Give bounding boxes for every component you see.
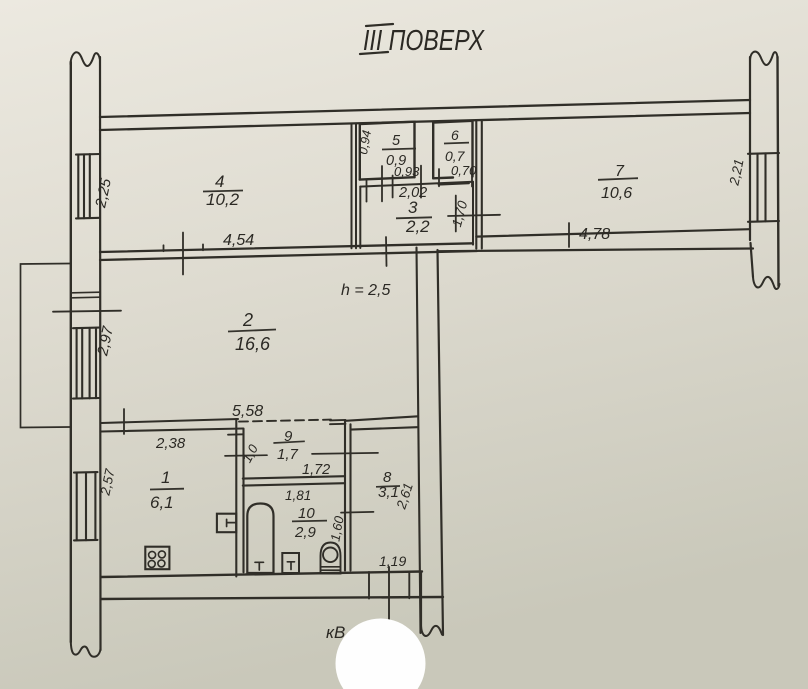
svg-text:1: 1: [161, 468, 170, 487]
svg-text:2: 2: [242, 310, 253, 330]
svg-text:1,7: 1,7: [277, 446, 299, 463]
svg-text:5,58: 5,58: [232, 403, 263, 420]
svg-text:0,93: 0,93: [394, 164, 420, 179]
svg-text:1,19: 1,19: [379, 553, 406, 569]
svg-text:10: 10: [298, 505, 315, 522]
svg-text:10,6: 10,6: [601, 185, 632, 202]
svg-text:10,2: 10,2: [206, 190, 240, 209]
svg-text:6: 6: [451, 127, 459, 143]
svg-text:1,72: 1,72: [302, 462, 330, 478]
svg-text:2,9: 2,9: [294, 524, 317, 541]
svg-text:6,1: 6,1: [150, 493, 174, 512]
svg-text:0,70: 0,70: [451, 163, 477, 178]
svg-text:4,54: 4,54: [223, 232, 254, 249]
svg-text:16,6: 16,6: [235, 334, 271, 354]
svg-text:2,02: 2,02: [398, 185, 427, 201]
svg-text:h = 2,5: h = 2,5: [341, 282, 390, 299]
svg-text:7: 7: [615, 163, 625, 180]
svg-text:4,78: 4,78: [579, 226, 610, 243]
svg-text:0,7: 0,7: [445, 148, 466, 164]
svg-text:кВ: кВ: [326, 623, 345, 642]
svg-text:4: 4: [215, 172, 224, 191]
svg-text:5: 5: [392, 133, 401, 149]
svg-text:2,2: 2,2: [405, 217, 430, 236]
svg-text:2,38: 2,38: [155, 435, 186, 452]
svg-text:1,81: 1,81: [285, 488, 311, 503]
